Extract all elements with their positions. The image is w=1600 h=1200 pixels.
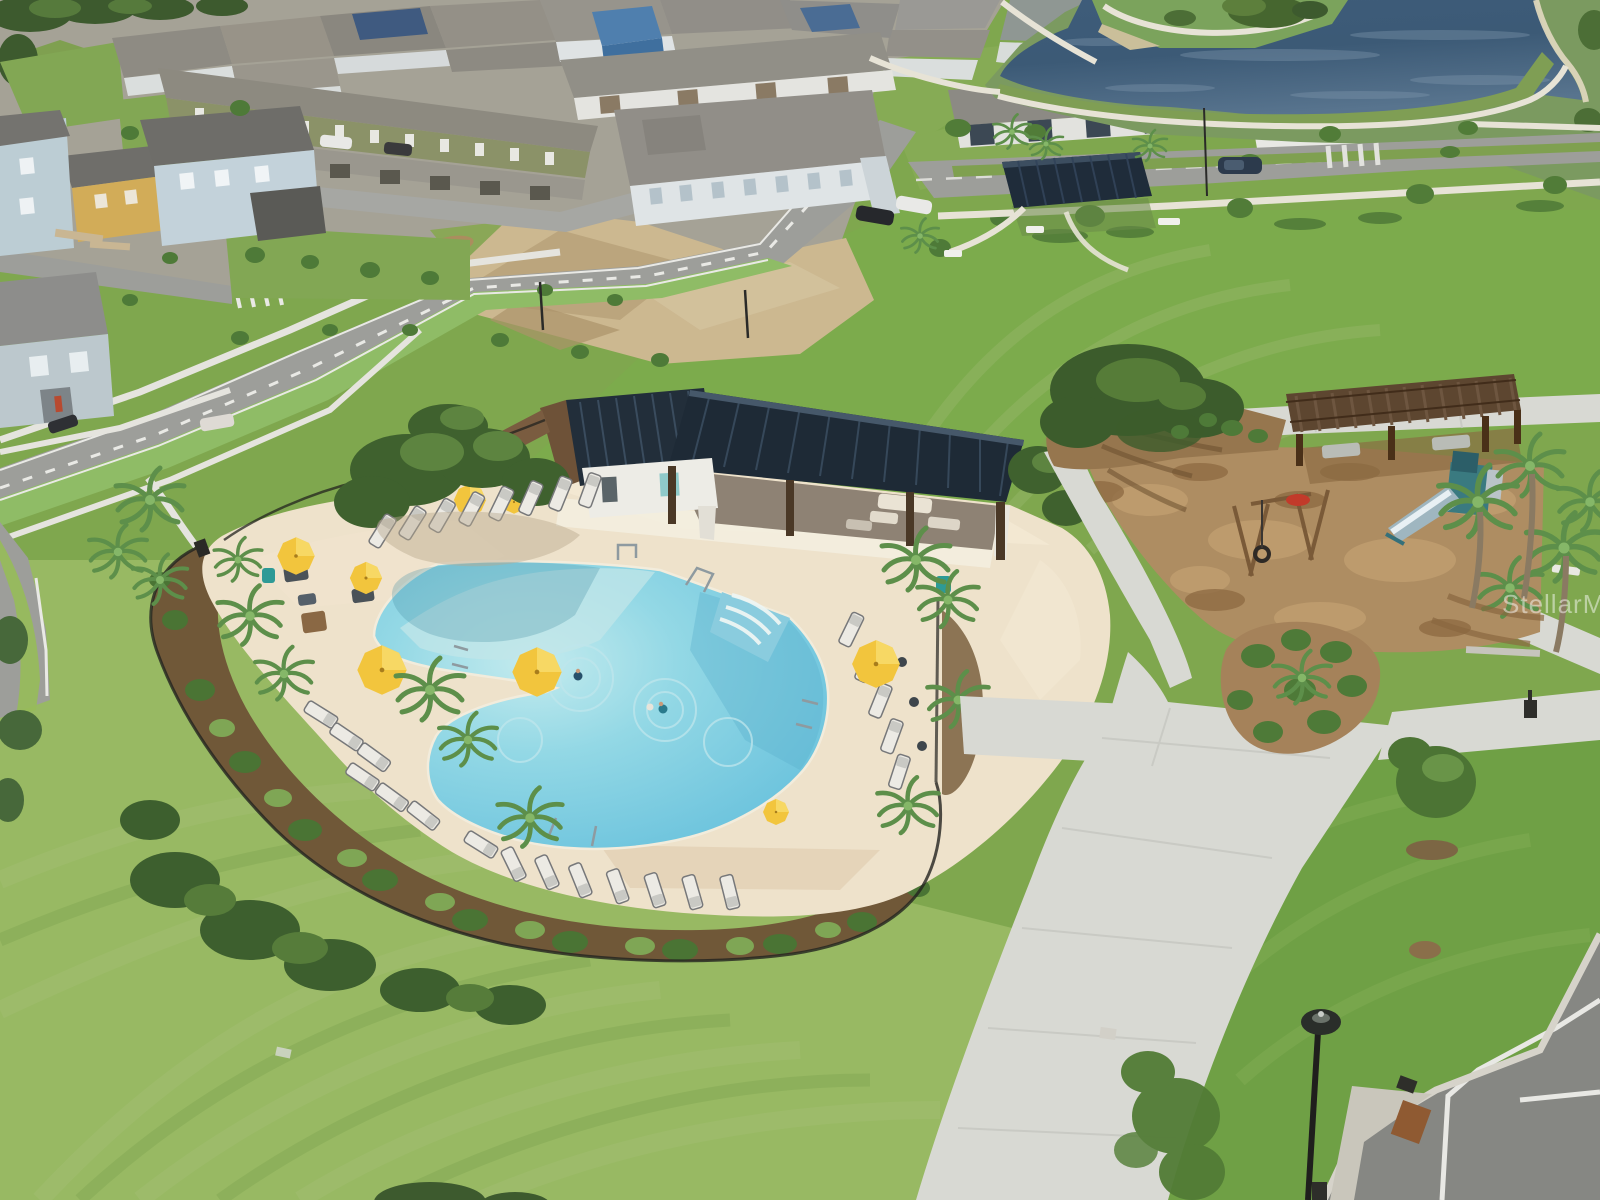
svg-text:StellarMLS: StellarMLS [1502, 589, 1600, 619]
